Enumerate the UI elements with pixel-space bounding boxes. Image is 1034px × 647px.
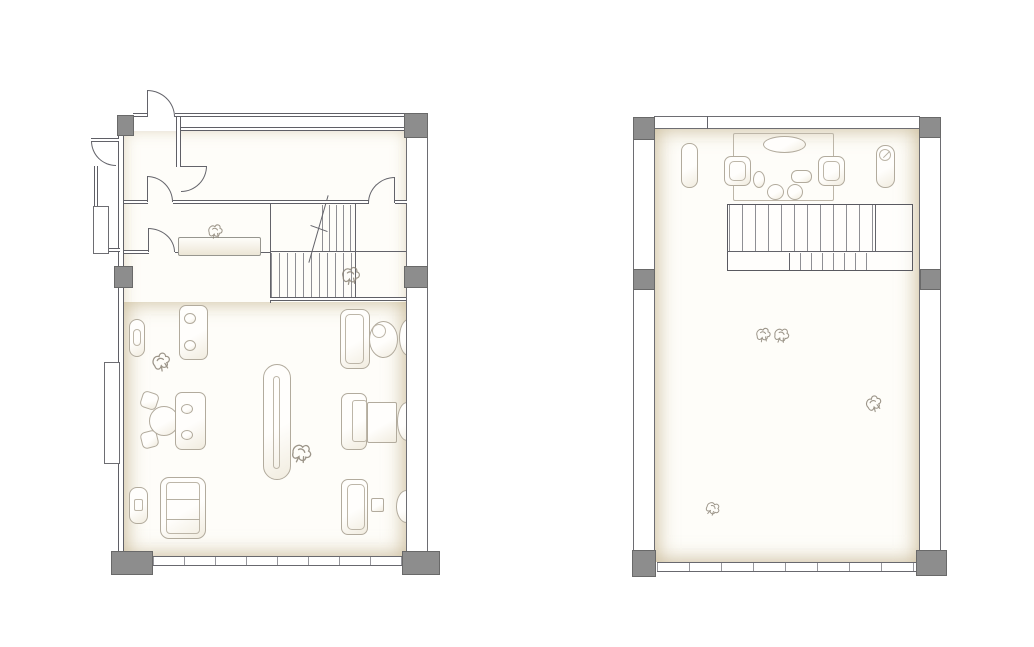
column: [633, 269, 655, 290]
stair-lower-run-treads: [789, 253, 877, 270]
stair-lower-edge: [789, 253, 790, 270]
top-wall-divider: [707, 116, 708, 129]
side-table: [753, 171, 765, 188]
column: [916, 550, 947, 576]
oval-table: [763, 136, 806, 153]
stair-landing-edge: [875, 205, 876, 251]
top-wall: [654, 116, 920, 129]
tray-table: [791, 170, 812, 183]
column: [632, 550, 656, 577]
pouf: [767, 184, 784, 200]
right-wall: [919, 136, 941, 552]
column: [919, 117, 941, 138]
upper-floor-plan: [0, 0, 1034, 647]
stair-upper-run-treads: [729, 205, 875, 251]
floor-plan-image: [0, 0, 1034, 647]
armchair-inner: [823, 161, 840, 181]
bench: [681, 143, 698, 188]
stair-run-divider: [727, 251, 913, 252]
left-wall: [633, 138, 655, 552]
armchair-inner: [729, 161, 746, 181]
column: [633, 117, 655, 140]
pouf: [787, 184, 803, 200]
window-band: [657, 562, 917, 572]
column: [920, 269, 941, 290]
